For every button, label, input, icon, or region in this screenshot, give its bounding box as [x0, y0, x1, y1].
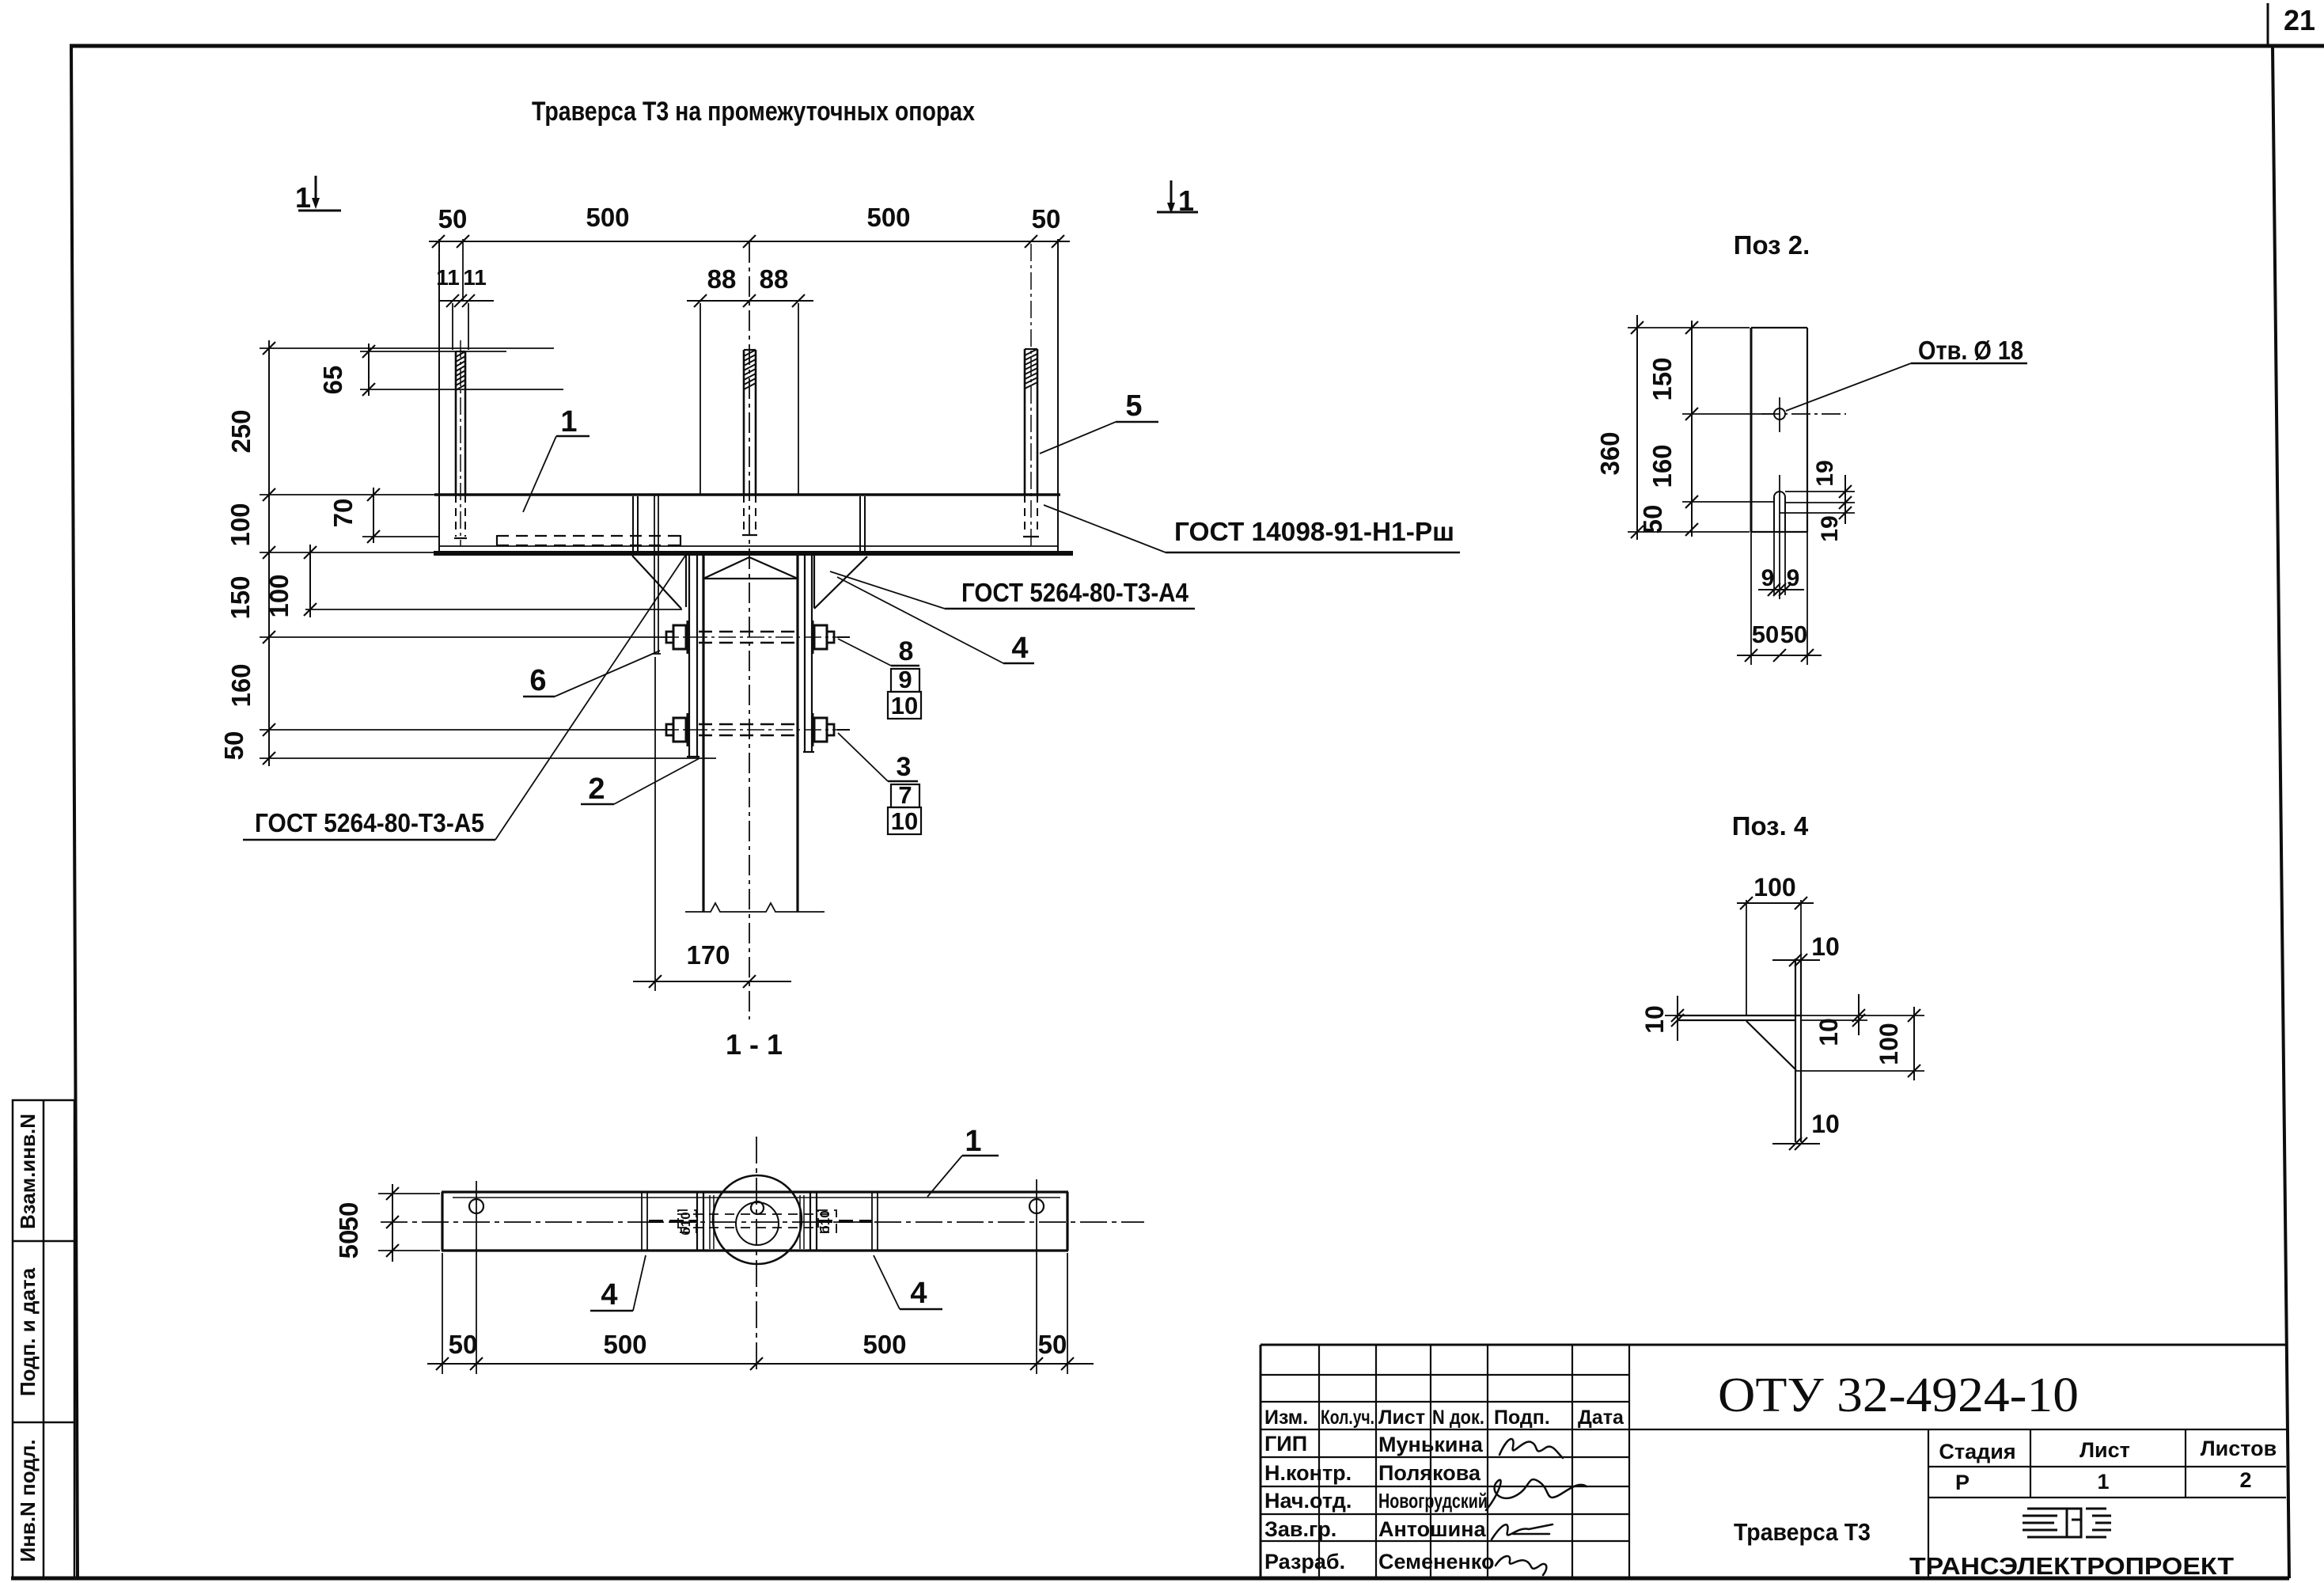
svg-text:88: 88: [760, 264, 789, 294]
svg-text:500: 500: [862, 1330, 906, 1359]
svg-text:7: 7: [898, 781, 912, 809]
svg-text:Зав.гр.: Зав.гр.: [1264, 1517, 1336, 1541]
svg-text:Новогрудский: Новогрудский: [1378, 1489, 1488, 1513]
svg-text:100: 100: [264, 574, 294, 617]
svg-text:Н.контр.: Н.контр.: [1264, 1461, 1352, 1485]
svg-text:70: 70: [328, 499, 358, 528]
svg-text:5: 5: [1125, 389, 1142, 423]
svg-text:10: 10: [891, 692, 918, 719]
svg-text:4: 4: [910, 1277, 927, 1310]
svg-text:50: 50: [1780, 621, 1807, 648]
svg-text:6: 6: [529, 664, 546, 697]
svg-text:9: 9: [1787, 565, 1800, 591]
svg-text:10: 10: [1811, 1110, 1840, 1138]
svg-text:2: 2: [2239, 1468, 2251, 1492]
svg-text:100: 100: [1753, 873, 1795, 902]
svg-text:10: 10: [1640, 1005, 1669, 1034]
svg-text:160: 160: [226, 663, 256, 707]
svg-text:1: 1: [965, 1125, 981, 1158]
svg-text:100: 100: [226, 503, 255, 546]
svg-text:11: 11: [463, 265, 487, 290]
svg-text:1: 1: [1178, 184, 1194, 217]
svg-text:8: 8: [899, 636, 914, 666]
svg-text:21: 21: [2284, 4, 2315, 36]
svg-text:N док.: N док.: [1432, 1406, 1484, 1429]
svg-text:Траверса Т3 на промежуточных о: Траверса Т3 на промежуточных опорах: [532, 97, 975, 127]
svg-text:50: 50: [438, 204, 468, 233]
svg-text:150: 150: [1647, 357, 1677, 400]
svg-text:9: 9: [898, 666, 912, 693]
svg-text:10: 10: [891, 807, 918, 835]
svg-text:150: 150: [226, 575, 255, 619]
svg-text:ГОСТ 14098-91-Н1-Рш: ГОСТ 14098-91-Н1-Рш: [1174, 517, 1454, 546]
svg-text:Антошина: Антошина: [1378, 1517, 1487, 1541]
svg-text:Подп. и дата: Подп. и дата: [16, 1267, 40, 1396]
svg-text:Поз. 4: Поз. 4: [1732, 811, 1809, 841]
svg-text:65: 65: [318, 366, 347, 395]
svg-text:Подп.: Подп.: [1494, 1406, 1550, 1429]
svg-text:250: 250: [226, 409, 256, 453]
svg-text:Листов: Листов: [2201, 1437, 2277, 1460]
svg-text:160: 160: [1647, 444, 1677, 488]
svg-text:Лист: Лист: [2079, 1438, 2130, 1462]
svg-text:19: 19: [1812, 460, 1838, 486]
svg-text:б10: б10: [817, 1210, 832, 1233]
svg-text:500: 500: [586, 203, 629, 232]
svg-text:50: 50: [219, 731, 248, 761]
svg-text:Кол.уч.: Кол.уч.: [1321, 1406, 1374, 1429]
svg-text:Инв.N подл.: Инв.N подл.: [16, 1439, 40, 1562]
svg-text:2: 2: [588, 773, 605, 806]
svg-text:50: 50: [1638, 505, 1667, 534]
svg-text:Изм.: Изм.: [1264, 1406, 1308, 1429]
svg-text:Р: Р: [1955, 1471, 1970, 1494]
svg-text:ГОСТ 5264-80-Т3-А5: ГОСТ 5264-80-Т3-А5: [255, 808, 484, 837]
svg-text:Стадия: Стадия: [1939, 1440, 2015, 1463]
svg-text:3: 3: [897, 752, 912, 782]
svg-text:Взам.инв.N: Взам.инв.N: [16, 1114, 40, 1229]
svg-text:Дата: Дата: [1578, 1406, 1625, 1429]
svg-text:Семененко: Семененко: [1378, 1550, 1494, 1574]
svg-text:50: 50: [334, 1230, 363, 1259]
svg-text:170: 170: [686, 940, 730, 970]
svg-text:19: 19: [1817, 515, 1843, 541]
svg-text:Мунькина: Мунькина: [1378, 1433, 1484, 1456]
svg-text:50: 50: [1032, 204, 1061, 233]
svg-text:б10: б10: [678, 1212, 693, 1235]
svg-text:ТРАНСЭЛЕКТРОПРОЕКТ: ТРАНСЭЛЕКТРОПРОЕКТ: [1909, 1552, 2234, 1580]
svg-text:9: 9: [1761, 565, 1775, 591]
svg-text:ОТУ 32-4924-10: ОТУ 32-4924-10: [1718, 1369, 2079, 1422]
svg-text:Поз 2.: Поз 2.: [1734, 230, 1810, 260]
svg-text:10: 10: [1814, 1018, 1843, 1046]
svg-text:100: 100: [1875, 1023, 1903, 1065]
svg-text:88: 88: [707, 264, 737, 294]
svg-text:1 - 1: 1 - 1: [726, 1028, 783, 1061]
svg-text:50: 50: [334, 1202, 363, 1232]
svg-text:1: 1: [2097, 1470, 2109, 1494]
svg-text:Траверса Т3: Траверса Т3: [1734, 1518, 1871, 1546]
svg-text:1: 1: [560, 405, 577, 438]
svg-text:Полякова: Полякова: [1378, 1461, 1481, 1485]
svg-text:Нач.отд.: Нач.отд.: [1264, 1489, 1352, 1513]
svg-text:4: 4: [1011, 632, 1028, 665]
svg-text:50: 50: [1752, 621, 1779, 648]
svg-text:500: 500: [866, 203, 910, 232]
svg-text:1: 1: [295, 181, 311, 214]
svg-text:Отв. Ø 18: Отв. Ø 18: [1918, 336, 2023, 365]
svg-text:4: 4: [601, 1278, 617, 1312]
svg-text:500: 500: [603, 1330, 646, 1359]
svg-text:ГИП: ГИП: [1264, 1432, 1307, 1456]
svg-text:Лист: Лист: [1378, 1406, 1425, 1429]
svg-text:360: 360: [1595, 431, 1625, 475]
svg-text:50: 50: [449, 1330, 478, 1359]
svg-text:10: 10: [1811, 932, 1840, 961]
svg-text:ГОСТ 5264-80-Т3-А4: ГОСТ 5264-80-Т3-А4: [961, 578, 1189, 607]
svg-text:Разраб.: Разраб.: [1264, 1550, 1345, 1574]
svg-text:50: 50: [1038, 1330, 1067, 1359]
svg-text:11: 11: [436, 265, 460, 290]
